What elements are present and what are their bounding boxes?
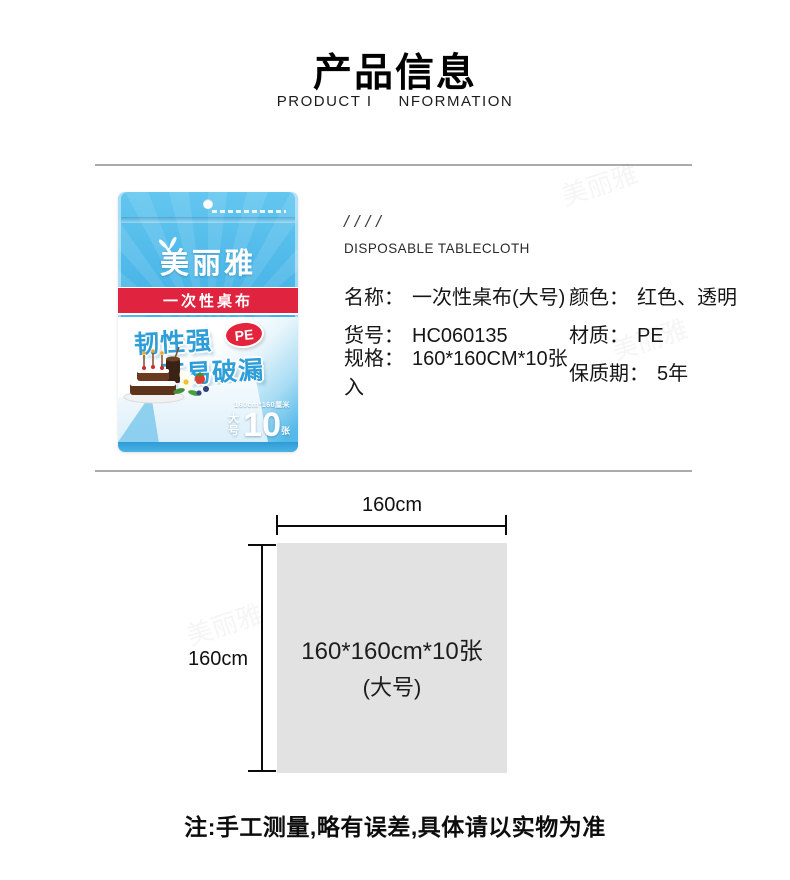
height-tick-top: [248, 544, 276, 546]
spec-value: 5年: [657, 363, 688, 385]
size-diagram-square: 160*160cm*10张 (大号): [277, 543, 507, 773]
height-dimension-line: [261, 545, 263, 772]
subtitle-left: PRODUCT I: [277, 93, 373, 110]
spec-size: 规格：160*160CM*10张入: [344, 342, 569, 400]
cake-illustration: [122, 343, 214, 410]
brand-watermark: 美丽雅: [556, 154, 642, 213]
count-number: 10: [243, 410, 281, 440]
package-bottom-strip: [118, 442, 298, 452]
subtitle-right: NFORMATION: [399, 93, 514, 110]
width-tick-right: [505, 515, 507, 535]
spec-label: 保质期：: [569, 363, 649, 385]
spec-name: 名称：一次性桌布(大号): [344, 281, 569, 310]
size-tag: 大号: [228, 413, 241, 437]
package-seal-crimp: [121, 217, 295, 223]
page-subtitle: PRODUCT I NFORMATION: [0, 93, 790, 110]
product-info-page: 产品信息 PRODUCT I NFORMATION 美丽雅 美丽雅 美丽雅 美丽…: [0, 0, 790, 880]
spec-table: 名称：一次性桌布(大号) 颜色：红色、透明 货号：HC060135 材质：PE …: [344, 276, 754, 390]
hang-hole: [203, 199, 213, 209]
height-dimension-label: 160cm: [182, 648, 254, 671]
measurement-note: 注:手工测量,略有误差,具体请以实物为准: [0, 808, 790, 842]
diagram-spec-text: 160*160cm*10张: [301, 631, 482, 666]
spec-shelf-life: 保质期：5年: [569, 357, 688, 386]
package-fine-print: [212, 210, 286, 213]
decorative-slashes: ////: [344, 212, 387, 232]
blueberry-icon: [196, 386, 209, 396]
brand-name: 美丽雅: [160, 240, 256, 282]
spec-row: 名称：一次性桌布(大号) 颜色：红色、透明: [344, 276, 754, 314]
butterfly-icon: [158, 227, 180, 260]
width-tick-left: [276, 515, 278, 535]
brand-area: 美丽雅: [118, 240, 298, 282]
diagram-size-tag: (大号): [363, 670, 422, 702]
brand-watermark: 美丽雅: [181, 594, 267, 653]
section-divider-top: [95, 164, 692, 166]
count-unit: 张: [281, 424, 290, 437]
spec-color: 颜色：红色、透明: [569, 281, 737, 310]
pe-badge: PE: [223, 319, 266, 350]
package-lower-area: 韧性强 PE 不易破漏: [118, 317, 298, 452]
spec-label: 规格：: [344, 348, 404, 370]
spec-label: 颜色：: [569, 287, 629, 309]
page-title: 产品信息: [0, 42, 790, 98]
height-tick-bottom: [248, 770, 276, 772]
width-dimension-line: [277, 525, 507, 527]
spec-label: 材质：: [569, 325, 629, 347]
package-count: 大号 10 张: [228, 410, 290, 440]
spec-label: 名称：: [344, 287, 404, 309]
strawberry-icon: [195, 372, 205, 384]
package-red-band: 一次性桌布: [118, 288, 298, 315]
spec-material: 材质：PE: [569, 319, 664, 348]
spec-value: 红色、透明: [637, 287, 737, 309]
section-divider-bottom: [95, 470, 692, 472]
spec-value: PE: [637, 325, 664, 347]
spec-value: 一次性桌布(大号): [412, 287, 565, 309]
spec-row: 规格：160*160CM*10张入 保质期：5年: [344, 352, 754, 390]
product-package-image: 美丽雅 一次性桌布 韧性强 PE 不易破漏: [118, 192, 298, 452]
english-heading: DISPOSABLE TABLECLOTH: [344, 240, 530, 256]
width-dimension-label: 160cm: [277, 494, 507, 517]
